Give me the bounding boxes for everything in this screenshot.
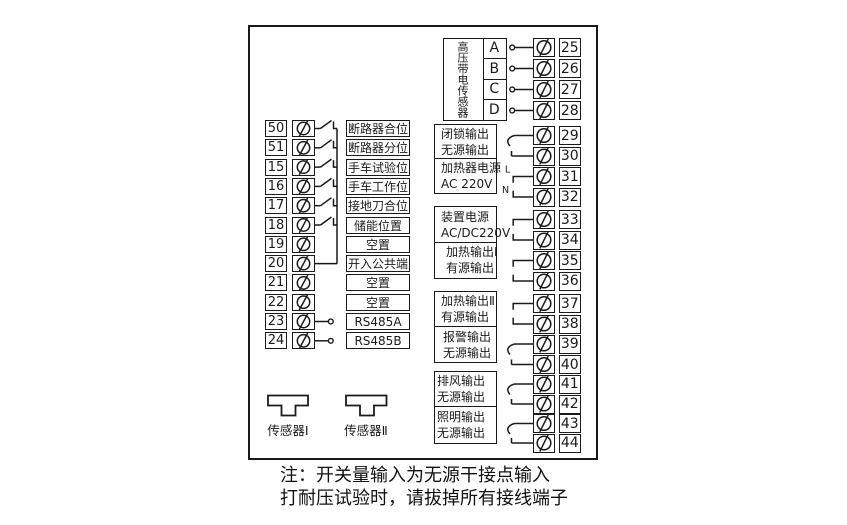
output-label-line: 无源输出	[441, 143, 489, 157]
terminal-screw	[292, 197, 315, 214]
input-function-label: 断路器分位	[346, 139, 410, 156]
terminal-screw	[533, 315, 555, 334]
note-line-1: 注：开关量输入为无源干接点输入	[280, 465, 550, 486]
terminal-number-41: 41	[559, 375, 581, 394]
terminal-screw	[533, 355, 555, 374]
terminal-screw	[292, 236, 315, 253]
terminal-screw	[533, 147, 555, 166]
input-function-label: RS485A	[346, 313, 410, 330]
terminal-number-37: 37	[559, 294, 581, 313]
terminal-screw	[292, 139, 315, 156]
output-label-line: 无源输出	[443, 346, 491, 360]
terminal-number-51: 51	[265, 139, 287, 156]
terminal-screw	[533, 375, 555, 394]
terminal-number-20: 20	[265, 255, 287, 272]
output-label-cell: 加热输出Ⅰ有源输出	[434, 243, 497, 279]
output-label-cell: 加热输出Ⅱ有源输出	[434, 291, 497, 327]
terminal-screw	[533, 210, 555, 229]
terminal-number-50: 50	[265, 120, 287, 137]
output-label-line: 报警输出	[443, 330, 491, 344]
hv-channel-D: D	[483, 100, 508, 121]
terminal-screw	[533, 272, 555, 291]
terminal-screw	[292, 255, 315, 272]
input-function-label: 空置	[346, 294, 410, 311]
terminal-wiring-diagram: LN 高压带电传感器 传感器Ⅰ 传感器Ⅱ 注：开关量输入为无源干接点输入 打耐压…	[0, 0, 847, 525]
terminal-screw	[533, 251, 555, 270]
input-function-label: 接地刀合位	[346, 197, 410, 214]
terminal-number-19: 19	[265, 236, 287, 253]
terminal-screw	[292, 332, 315, 349]
input-function-label: RS485B	[346, 332, 410, 349]
terminal-number-42: 42	[559, 395, 581, 414]
output-label-line: 无源输出	[437, 426, 485, 440]
terminal-number-40: 40	[559, 355, 581, 374]
terminal-number-21: 21	[265, 274, 287, 291]
terminal-screw	[533, 231, 555, 250]
terminal-screw	[533, 101, 555, 120]
terminal-screw	[533, 188, 555, 207]
sensor-2-label: 传感器Ⅱ	[335, 420, 397, 436]
terminal-number-16: 16	[265, 178, 287, 195]
output-label-line: 有源输出	[441, 310, 489, 324]
hv-sensor-label: 高压带电传感器	[443, 38, 484, 121]
hv-channel-B: B	[483, 59, 508, 80]
output-label-cell: 排风输出无源输出	[434, 371, 497, 407]
terminal-number-27: 27	[559, 80, 581, 99]
terminal-screw	[292, 294, 315, 311]
terminal-number-35: 35	[559, 251, 581, 270]
sensor-1-label: 传感器Ⅰ	[257, 420, 319, 436]
terminal-number-38: 38	[559, 315, 581, 334]
hv-channel-A: A	[483, 38, 508, 59]
terminal-number-28: 28	[559, 101, 581, 120]
terminal-screw	[292, 274, 315, 291]
output-label-line: 加热输出Ⅱ	[441, 294, 495, 308]
hv-channel-C: C	[483, 80, 508, 101]
terminal-number-31: 31	[559, 167, 581, 186]
terminal-number-24: 24	[265, 332, 287, 349]
input-function-label: 手车工作位	[346, 178, 410, 195]
terminal-screw	[533, 38, 555, 57]
terminal-screw	[533, 434, 555, 453]
output-label-line: AC 220V	[441, 177, 492, 191]
terminal-number-36: 36	[559, 272, 581, 291]
terminal-number-22: 22	[265, 294, 287, 311]
terminal-number-39: 39	[559, 335, 581, 354]
terminal-screw	[533, 59, 555, 78]
terminal-screw	[533, 80, 555, 99]
terminal-screw	[533, 414, 555, 433]
terminal-screw	[533, 126, 555, 145]
output-label-cell: 报警输出无源输出	[434, 327, 497, 363]
terminal-number-33: 33	[559, 210, 581, 229]
terminal-number-26: 26	[559, 59, 581, 78]
input-function-label: 手车试验位	[346, 159, 410, 176]
terminal-screw	[292, 178, 315, 195]
output-label-cell: 装置电源AC/DC220V	[434, 206, 497, 243]
output-label-line: 加热器电源	[441, 161, 501, 175]
terminal-number-32: 32	[559, 188, 581, 207]
terminal-screw	[292, 217, 315, 234]
output-label-cell: 加热器电源AC 220V	[434, 159, 497, 194]
terminal-number-23: 23	[265, 313, 287, 330]
terminal-screw	[533, 335, 555, 354]
input-function-label: 空置	[346, 274, 410, 291]
terminal-screw	[533, 294, 555, 313]
terminal-number-44: 44	[559, 434, 581, 453]
terminal-screw	[292, 313, 315, 330]
input-function-label: 储能位置	[346, 217, 410, 234]
output-label-line: 有源输出	[446, 261, 494, 275]
terminal-screw	[533, 395, 555, 414]
terminal-screw	[292, 120, 315, 137]
terminal-number-25: 25	[559, 38, 581, 57]
terminal-number-15: 15	[265, 159, 287, 176]
terminal-number-30: 30	[559, 147, 581, 166]
output-label-line: 照明输出	[437, 410, 485, 424]
terminal-screw	[292, 159, 315, 176]
terminal-number-29: 29	[559, 126, 581, 145]
terminal-screw	[533, 167, 555, 186]
terminal-number-34: 34	[559, 231, 581, 250]
output-label-cell: 闭锁输出无源输出	[434, 124, 497, 159]
terminal-number-43: 43	[559, 414, 581, 433]
input-function-label: 断路器合位	[346, 120, 410, 137]
output-label-line: 无源输出	[437, 390, 485, 404]
output-label-cell: 照明输出无源输出	[434, 407, 497, 444]
output-label-line: 装置电源	[441, 210, 489, 224]
terminal-number-18: 18	[265, 217, 287, 234]
input-function-label: 空置	[346, 236, 410, 253]
input-function-label: 开入公共端	[346, 255, 410, 272]
output-label-line: 排风输出	[437, 374, 485, 388]
output-label-line: 闭锁输出	[441, 127, 489, 141]
terminal-number-17: 17	[265, 197, 287, 214]
output-label-line: 加热输出Ⅰ	[446, 245, 498, 259]
output-label-line: AC/DC220V	[441, 226, 510, 240]
note-line-2: 打耐压试验时，请拔掉所有接线端子	[280, 488, 568, 509]
